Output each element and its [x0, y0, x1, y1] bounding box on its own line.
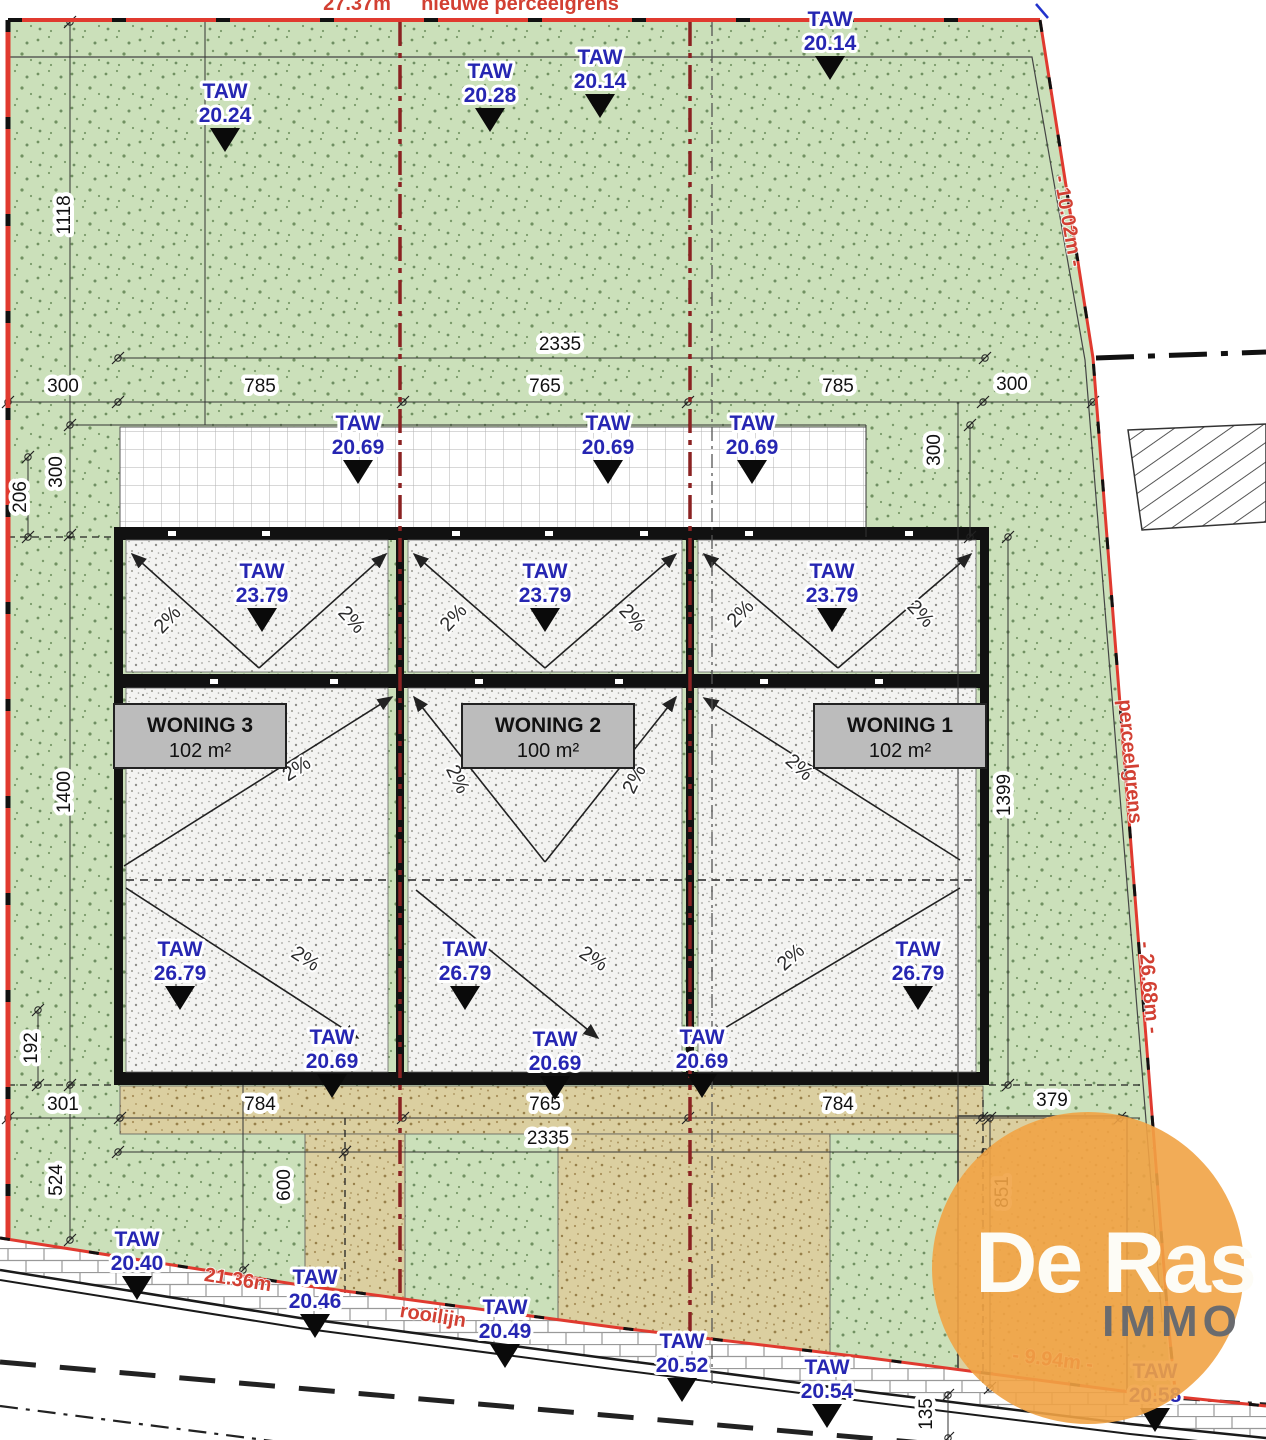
dimension-label: 300 — [924, 434, 945, 466]
logo-text-line2: IMMO — [1102, 1297, 1242, 1346]
boundary-label: nieuwe perceelgrens — [421, 0, 619, 15]
neighbour-building-hatched — [1128, 424, 1266, 530]
taw-marker-label: TAW — [309, 1026, 354, 1049]
taw-marker-value: 20.24 — [199, 104, 252, 127]
taw-marker-label: TAW — [532, 1028, 577, 1051]
dimension-label: 192 — [21, 1032, 42, 1064]
taw-marker-label: TAW — [659, 1330, 704, 1353]
dimension-label: 300 — [47, 376, 79, 397]
dimension-label: 2335 — [527, 1128, 569, 1149]
house-area: 102 m² — [169, 740, 232, 762]
taw-marker-label: TAW — [114, 1228, 159, 1251]
taw-marker-label: TAW — [522, 560, 567, 583]
taw-marker-value: 20.14 — [804, 32, 857, 55]
building-mid-wall — [114, 674, 989, 688]
taw-marker-label: TAW — [895, 938, 940, 961]
taw-marker-value: 20.69 — [332, 436, 385, 459]
house-label-box: WONING 1102 m² — [814, 704, 986, 768]
dimension-label: 785 — [822, 376, 854, 397]
taw-marker-label: TAW — [202, 80, 247, 103]
building-right-wall — [980, 527, 989, 1085]
taw-marker-value: 20.54 — [801, 1380, 854, 1403]
house-labels-layer: WONING 3102 m²WONING 2100 m²WONING 1102 … — [114, 704, 986, 768]
taw-marker-value: 20.69 — [529, 1052, 582, 1075]
boundary-label: 27.37m — [323, 0, 391, 15]
taw-marker-label: TAW — [807, 8, 852, 31]
taw-marker-value: 20.52 — [656, 1354, 709, 1377]
building-left-wall — [114, 527, 123, 1085]
house-area: 100 m² — [517, 740, 580, 762]
dimension-label: 785 — [244, 376, 276, 397]
dimension-label: 300 — [996, 374, 1028, 395]
dimension-label: 600 — [274, 1169, 295, 1201]
dimension-label: 1400 — [54, 771, 75, 813]
taw-marker-label: TAW — [335, 412, 380, 435]
taw-marker-value: 20.69 — [726, 436, 779, 459]
dimension-label: 2335 — [539, 334, 581, 355]
dimension-label: 1399 — [994, 774, 1015, 816]
dimension-label: 300 — [46, 456, 67, 488]
house-name: WONING 2 — [495, 714, 601, 737]
site-plan-drawing: 2%2%2%2%2%2%2%2%2%2%2%2%2% 2335300785765… — [0, 0, 1266, 1440]
house-name: WONING 3 — [147, 714, 253, 737]
house-label-box: WONING 3102 m² — [114, 704, 286, 768]
dimension-label: 301 — [47, 1094, 79, 1115]
taw-marker-label: TAW — [809, 560, 854, 583]
taw-marker-label: TAW — [482, 1296, 527, 1319]
dimension-label: 784 — [822, 1094, 854, 1115]
taw-marker-value: 20.46 — [289, 1290, 342, 1313]
taw-marker-value: 23.79 — [236, 584, 289, 607]
taw-marker-label: TAW — [585, 412, 630, 435]
dimension-label: 379 — [1036, 1090, 1068, 1111]
taw-marker-value: 26.79 — [439, 962, 492, 985]
taw-marker-value: 23.79 — [806, 584, 859, 607]
taw-marker-label: TAW — [577, 46, 622, 69]
taw-marker-label: TAW — [467, 60, 512, 83]
dimension-label: 1118 — [54, 195, 75, 234]
taw-marker-label: TAW — [239, 560, 284, 583]
taw-marker-label: TAW — [804, 1356, 849, 1379]
dimension-label: 784 — [244, 1094, 276, 1115]
taw-marker-value: 20.49 — [479, 1320, 532, 1343]
house-area: 102 m² — [869, 740, 932, 762]
taw-marker-label: TAW — [157, 938, 202, 961]
taw-marker-label: TAW — [679, 1026, 724, 1049]
taw-marker-label: TAW — [292, 1266, 337, 1289]
dimension-label: 765 — [529, 376, 561, 397]
taw-marker-value: 20.40 — [111, 1252, 164, 1275]
taw-marker-value: 23.79 — [519, 584, 572, 607]
taw-marker-value: 20.28 — [464, 84, 517, 107]
taw-marker-value: 20.69 — [676, 1050, 729, 1073]
taw-marker-label: TAW — [442, 938, 487, 961]
taw-marker-value: 20.69 — [582, 436, 635, 459]
taw-marker-value: 26.79 — [892, 962, 945, 985]
taw-marker-value: 20.14 — [574, 70, 627, 93]
taw-marker-value: 20.69 — [306, 1050, 359, 1073]
dimension-label: 206 — [10, 481, 31, 513]
house-label-box: WONING 2100 m² — [462, 704, 634, 768]
dimension-label: 135 — [916, 1398, 937, 1430]
site-plan-page: 2%2%2%2%2%2%2%2%2%2%2%2%2% 2335300785765… — [0, 0, 1266, 1440]
dimension-label: 524 — [46, 1164, 67, 1196]
taw-marker-label: TAW — [729, 412, 774, 435]
taw-marker-value: 26.79 — [154, 962, 207, 985]
house-name: WONING 1 — [847, 714, 953, 737]
